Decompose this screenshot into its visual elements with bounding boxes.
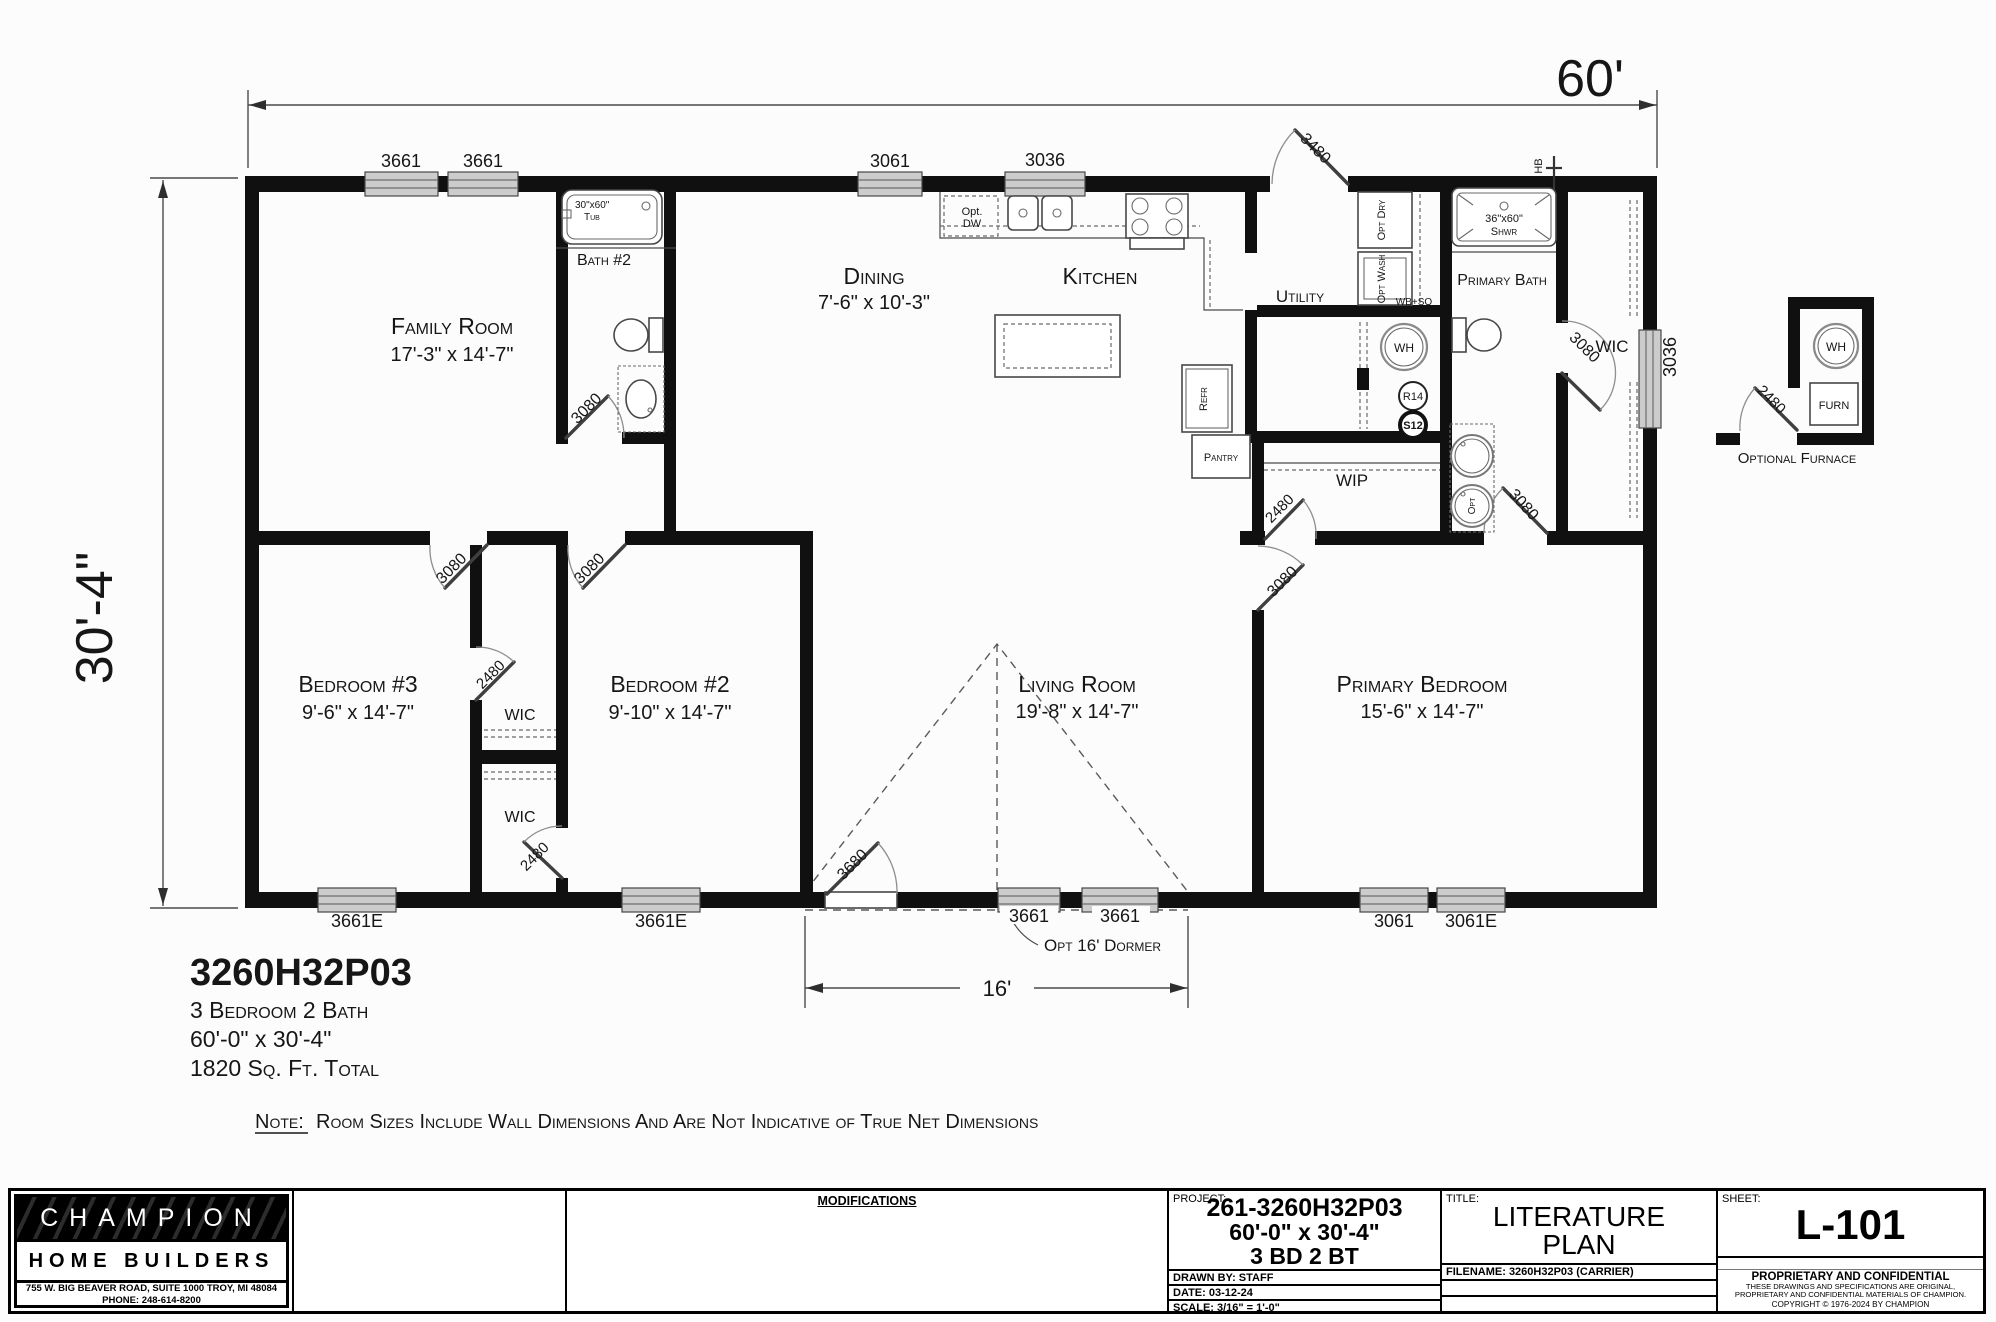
room-label-utility: Utility — [1276, 287, 1324, 306]
modifications-header: MODIFICATIONS — [817, 1194, 916, 1208]
dim-top: 60' — [1556, 50, 1624, 108]
proprietary-heading: PROPRIETARY AND CONFIDENTIAL — [1720, 1271, 1981, 1283]
company-phone: PHONE: 248-614-8200 — [102, 1295, 201, 1307]
scale: SCALE: 3/16" = 1'-0" — [1169, 1299, 1440, 1314]
room-label-family: Family Room — [391, 313, 513, 339]
date: DATE: 03-12-24 — [1169, 1284, 1440, 1299]
hb-label: HB — [1533, 158, 1545, 173]
range — [1126, 194, 1188, 238]
door-label: 2480 — [1753, 382, 1789, 418]
project-bd-bt: 3 BD 2 BT — [1169, 1245, 1440, 1269]
sheet-label: SHEET: — [1722, 1193, 1761, 1205]
project-size: 60'-0" x 30'-4" — [1169, 1221, 1440, 1245]
room-dims-living: 19'-8" x 14'-7" — [1015, 701, 1138, 723]
room-label-wic-bed3: WIC — [504, 707, 535, 724]
floor-plan-drawing: 60' 30'-4" 16' Opt 16' Dormer — [0, 0, 1996, 1186]
window-label: 3661 — [381, 151, 421, 171]
detail-caption: Optional Furnace — [1738, 450, 1857, 467]
door-label: 3680 — [834, 846, 871, 883]
room-label-dining: Dining — [843, 263, 904, 289]
room-dims-family: 17'-3" x 14'-7" — [390, 344, 513, 366]
window-label: 3036 — [1025, 150, 1065, 170]
room-label-wic-primary: WIC — [1595, 337, 1628, 356]
opt-sink-label: Opt — [1467, 497, 1478, 514]
window-label: 3661E — [635, 911, 687, 931]
window-label: 3661 — [1100, 906, 1140, 926]
title-block: CHAMPION HOME BUILDERS 755 W. BIG BEAVER… — [8, 1188, 1986, 1314]
plan-area: 1820 Sq. Ft. Total — [190, 1055, 379, 1081]
room-label-bath2: Bath #2 — [577, 252, 631, 269]
sheet-title-line1: LITERATURE — [1442, 1203, 1716, 1231]
window-label: 3061E — [1445, 911, 1497, 931]
room-dims-bed3: 9'-6" x 14'-7" — [302, 702, 414, 724]
tub — [562, 190, 662, 244]
wbso-label: WB+SO — [1396, 297, 1433, 308]
door-label: 3080 — [568, 390, 605, 427]
note: Note: Room Sizes Include Wall Dimensions… — [255, 1111, 1038, 1133]
s12-label: S12 — [1403, 420, 1423, 432]
tub-size-label: 30"x60" — [575, 200, 610, 211]
proprietary-line: PROPRIETARY AND CONFIDENTIAL MATERIALS O… — [1720, 1291, 1981, 1300]
window-label: 3061 — [1374, 911, 1414, 931]
window-label: 3661E — [331, 911, 383, 931]
dim-dormer: 16' — [983, 976, 1012, 1001]
pantry-label: Pantry — [1204, 452, 1239, 464]
door-label: 3080 — [1505, 486, 1542, 524]
plan-summary: 3260H32P03 3 Bedroom 2 Bath 60'-0" x 30'… — [190, 952, 412, 1081]
empty-row — [1442, 1279, 1716, 1295]
room-label-primary-bath: Primary Bath — [1457, 272, 1547, 289]
modifications-cell: MODIFICATIONS — [567, 1191, 1169, 1311]
door-label: 3080 — [1264, 563, 1301, 600]
company-address: 755 W. BIG BEAVER ROAD, SUITE 1000 TROY,… — [26, 1283, 277, 1295]
optional-furnace-detail: 2480 WH FURN Optional Furnace — [1716, 297, 1874, 467]
champion-logo: CHAMPION — [17, 1197, 286, 1239]
window-label: 3036 — [1660, 337, 1680, 377]
window-label: 3661 — [1009, 906, 1049, 926]
filename: FILENAME: 3260H32P03 (CARRIER) — [1442, 1263, 1716, 1279]
revision-cell — [294, 1191, 567, 1311]
dormer-callout: Opt 16' Dormer — [1044, 936, 1161, 955]
walls — [245, 176, 1657, 908]
window-label: 3661 — [463, 151, 503, 171]
doors: 3480 3080 3080 3080 2480 2480 3680 2480 … — [430, 130, 1616, 908]
toilet — [1452, 318, 1466, 352]
note-label: Note: — [255, 1111, 304, 1133]
wh-label: WH — [1826, 340, 1846, 354]
proprietary-block: PROPRIETARY AND CONFIDENTIAL THESE DRAWI… — [1718, 1269, 1983, 1311]
note-text: Room Sizes Include Wall Dimensions And A… — [316, 1111, 1038, 1133]
tub-label: Tub — [584, 212, 600, 223]
dw-label: DW — [963, 218, 982, 230]
floor-plan-sheet: 60' 30'-4" 16' Opt 16' Dormer — [0, 0, 1996, 1322]
room-label-wip: WIP — [1336, 471, 1368, 490]
home-builders-label: HOME BUILDERS — [17, 1239, 286, 1283]
room-label-living: Living Room — [1018, 671, 1136, 697]
shower-size-label: 36"x60" — [1485, 213, 1523, 225]
title-label: TITLE: — [1446, 1193, 1479, 1205]
plan-model: 3260H32P03 — [190, 952, 412, 994]
room-dims-bed2: 9'-10" x 14'-7" — [608, 702, 731, 724]
room-label-primary-bed: Primary Bedroom — [1336, 671, 1507, 697]
washer-label: Opt Wash — [1376, 254, 1388, 303]
door-label: 2480 — [517, 839, 553, 875]
project-label: PROJECT: — [1173, 1193, 1226, 1205]
refr-label: Refr — [1198, 387, 1210, 411]
furnace-label: FURN — [1819, 400, 1850, 412]
room-label-bed3: Bedroom #3 — [298, 671, 417, 697]
sheet-title-line2: PLAN — [1442, 1231, 1716, 1259]
dim-left: 30'-4" — [66, 552, 124, 684]
wh-label: WH — [1394, 341, 1414, 355]
window-label: 3061 — [870, 151, 910, 171]
room-label-bed2: Bedroom #2 — [610, 671, 729, 697]
shower-label: Shwr — [1491, 226, 1518, 238]
kitchen-sink — [1008, 196, 1038, 230]
plan-size: 60'-0" x 30'-4" — [190, 1026, 331, 1052]
plan-type: 3 Bedroom 2 Bath — [190, 997, 368, 1023]
room-dims-primary-bed: 15'-6" x 14'-7" — [1360, 701, 1483, 723]
room-label-wic-bed2: WIC — [504, 809, 535, 826]
kitchen-counter — [940, 192, 1243, 310]
sheet-gap — [1718, 1256, 1983, 1269]
r14-label: R14 — [1403, 391, 1423, 403]
toilet — [649, 318, 663, 352]
room-label-kitchen: Kitchen — [1063, 263, 1138, 289]
empty-row — [1442, 1295, 1716, 1311]
dryer-label: Opt Dry — [1376, 199, 1388, 240]
room-dims-dining: 7'-6" x 10'-3" — [818, 292, 930, 314]
dw-label: Opt. — [962, 206, 983, 218]
project-cell: PROJECT: 261-3260H32P03 60'-0" x 30'-4" … — [1169, 1191, 1442, 1311]
title-cell: TITLE: LITERATURE PLAN FILENAME: 3260H32… — [1442, 1191, 1718, 1311]
drawn-by: DRAWN BY: STAFF — [1169, 1269, 1440, 1284]
sheet-cell: SHEET: L-101 PROPRIETARY AND CONFIDENTIA… — [1718, 1191, 1983, 1311]
copyright-line: COPYRIGHT © 1976-2024 BY CHAMPION — [1720, 1300, 1981, 1309]
logo-cell: CHAMPION HOME BUILDERS 755 W. BIG BEAVER… — [11, 1191, 294, 1311]
